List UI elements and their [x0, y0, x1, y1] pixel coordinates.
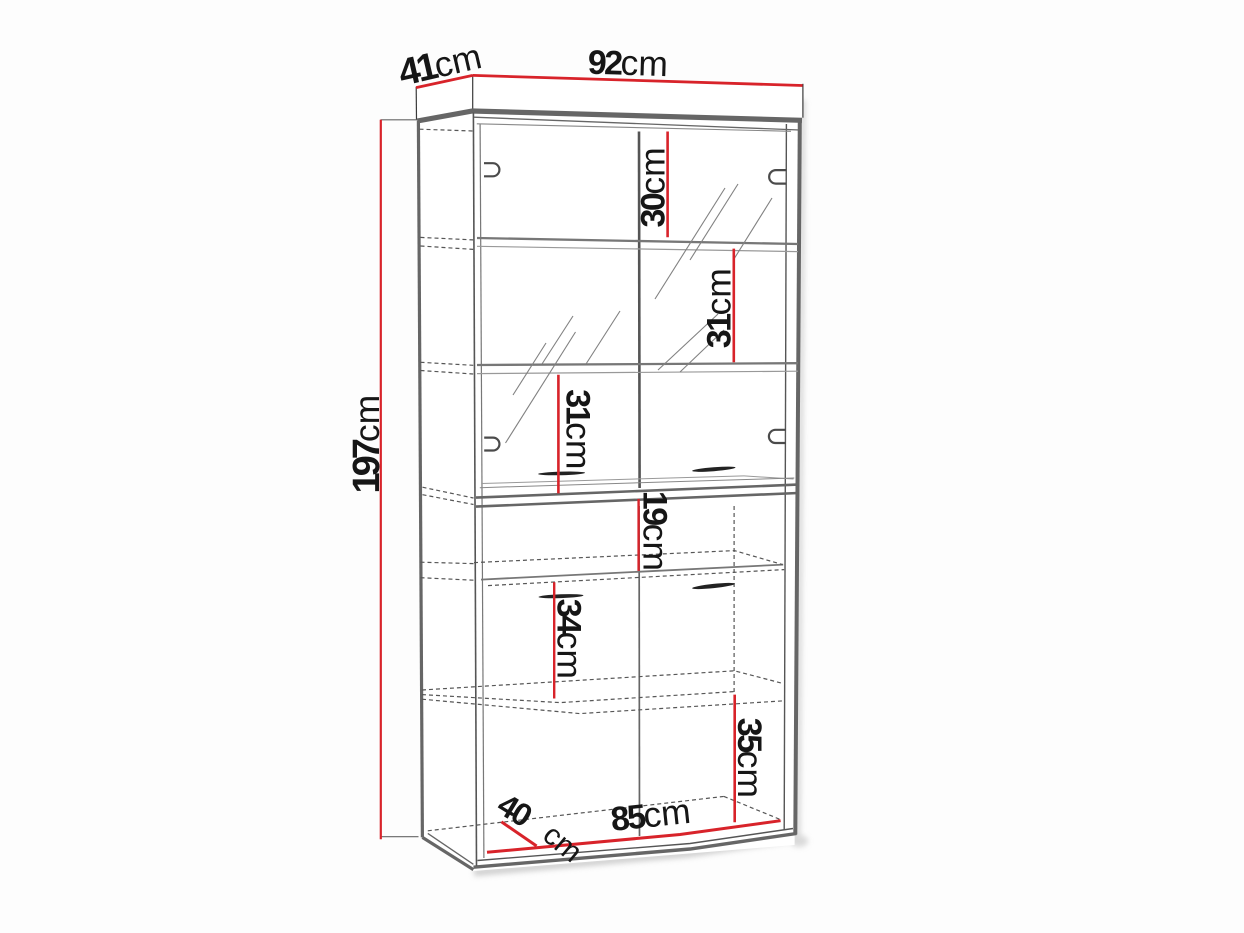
svg-text:31cm: 31cm	[559, 389, 599, 469]
svg-text:35cm: 35cm	[730, 718, 770, 798]
svg-text:30cm: 30cm	[633, 147, 673, 227]
svg-text:92cm: 92cm	[587, 42, 668, 84]
svg-text:31cm: 31cm	[699, 268, 739, 348]
svg-text:19cm: 19cm	[636, 491, 676, 571]
svg-text:197cm: 197cm	[346, 395, 388, 494]
svg-text:34cm: 34cm	[549, 599, 589, 679]
